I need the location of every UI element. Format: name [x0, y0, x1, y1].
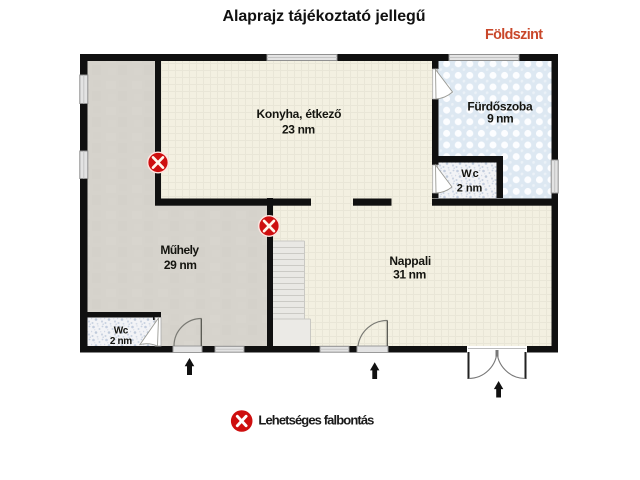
- svg-text:9 nm: 9 nm: [487, 112, 514, 126]
- svg-text:Földszint: Földszint: [485, 27, 543, 43]
- svg-text:29 nm: 29 nm: [164, 258, 197, 272]
- svg-text:Alaprajz tájékoztató jellegű: Alaprajz tájékoztató jellegű: [223, 8, 426, 25]
- svg-text:Wc: Wc: [114, 326, 129, 337]
- svg-text:31 nm: 31 nm: [393, 268, 426, 282]
- svg-text:2 nm: 2 nm: [110, 336, 132, 347]
- svg-text:Wc: Wc: [461, 168, 479, 180]
- svg-text:Műhely: Műhely: [160, 243, 199, 257]
- svg-text:23 nm: 23 nm: [282, 122, 315, 136]
- svg-text:Lehetséges falbontás: Lehetséges falbontás: [258, 413, 374, 428]
- svg-text:Nappali: Nappali: [389, 254, 431, 268]
- svg-text:2 nm: 2 nm: [457, 183, 483, 195]
- svg-text:Konyha, étkező: Konyha, étkező: [257, 107, 342, 121]
